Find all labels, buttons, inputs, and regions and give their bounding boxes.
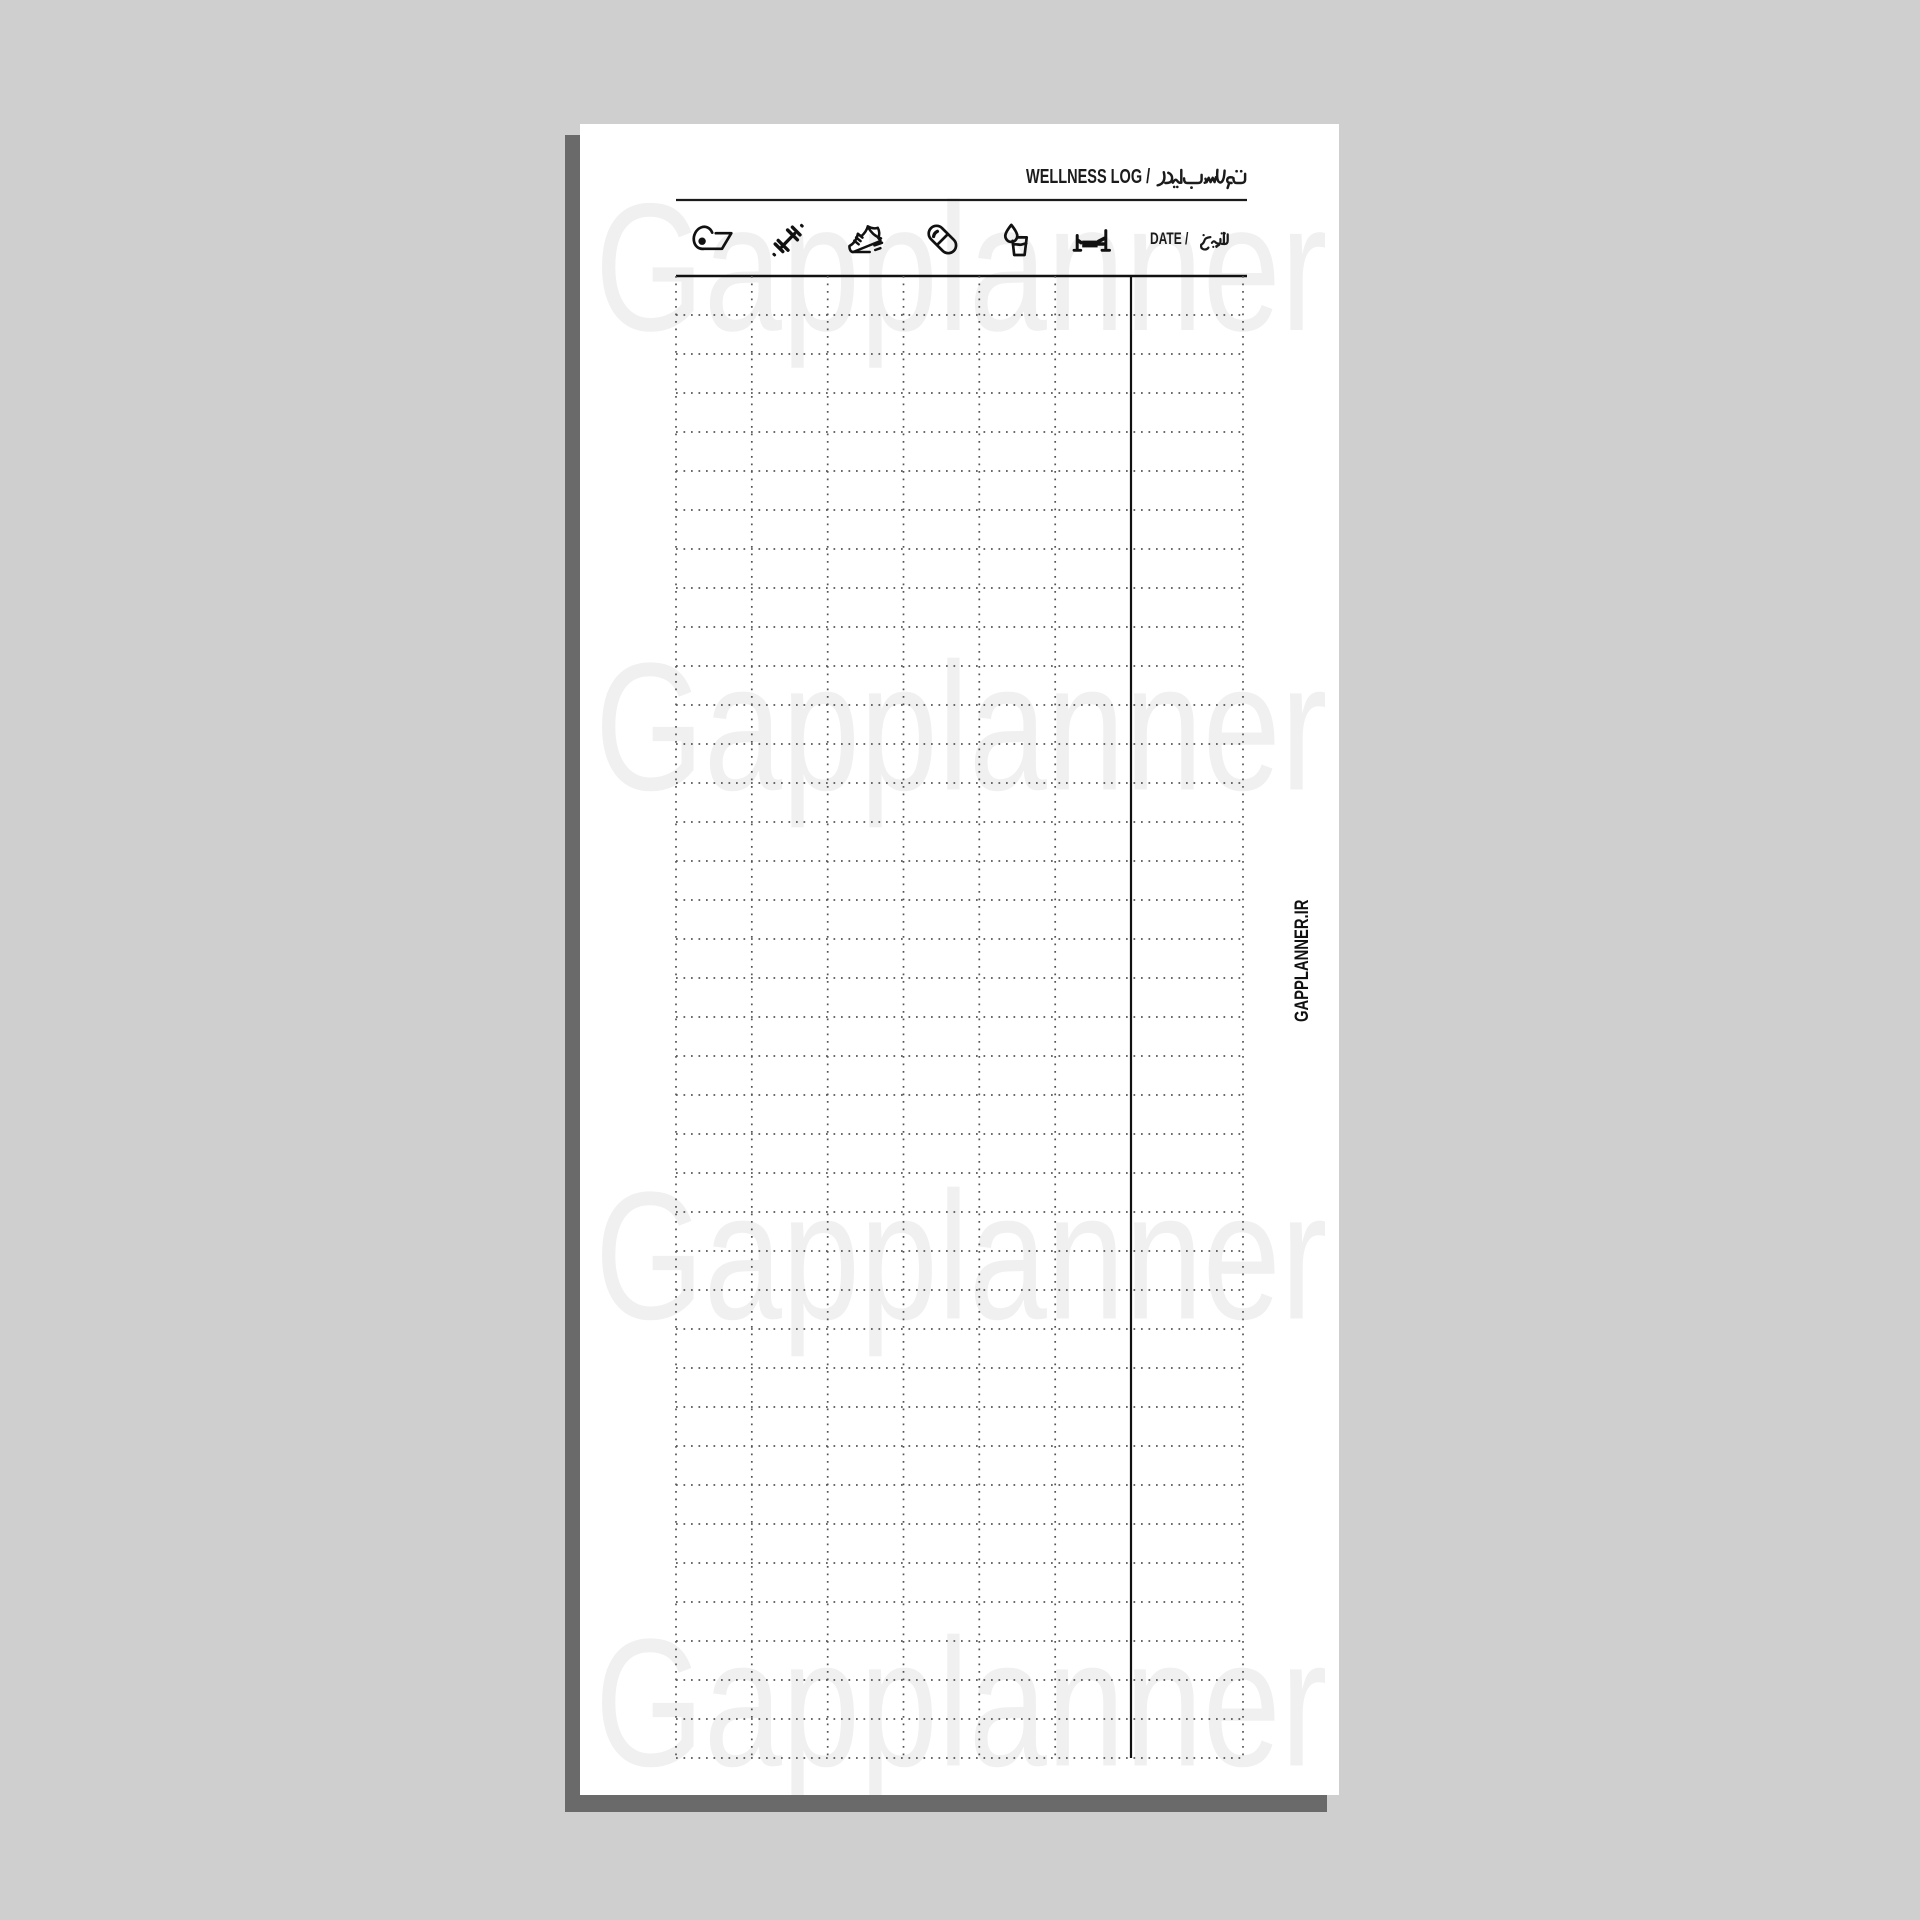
svg-text:DATE /: DATE / — [1150, 230, 1188, 248]
svg-text:Gapplanner: Gapplanner — [595, 166, 1327, 369]
svg-text:Gapplanner: Gapplanner — [595, 1602, 1327, 1795]
svg-text:Gapplanner: Gapplanner — [595, 1155, 1327, 1358]
svg-text:WELLNESS LOG /: WELLNESS LOG / — [1026, 165, 1150, 188]
svg-text:Gapplanner: Gapplanner — [595, 626, 1327, 829]
svg-text:GAPPLANNER.IR: GAPPLANNER.IR — [1291, 900, 1312, 1022]
